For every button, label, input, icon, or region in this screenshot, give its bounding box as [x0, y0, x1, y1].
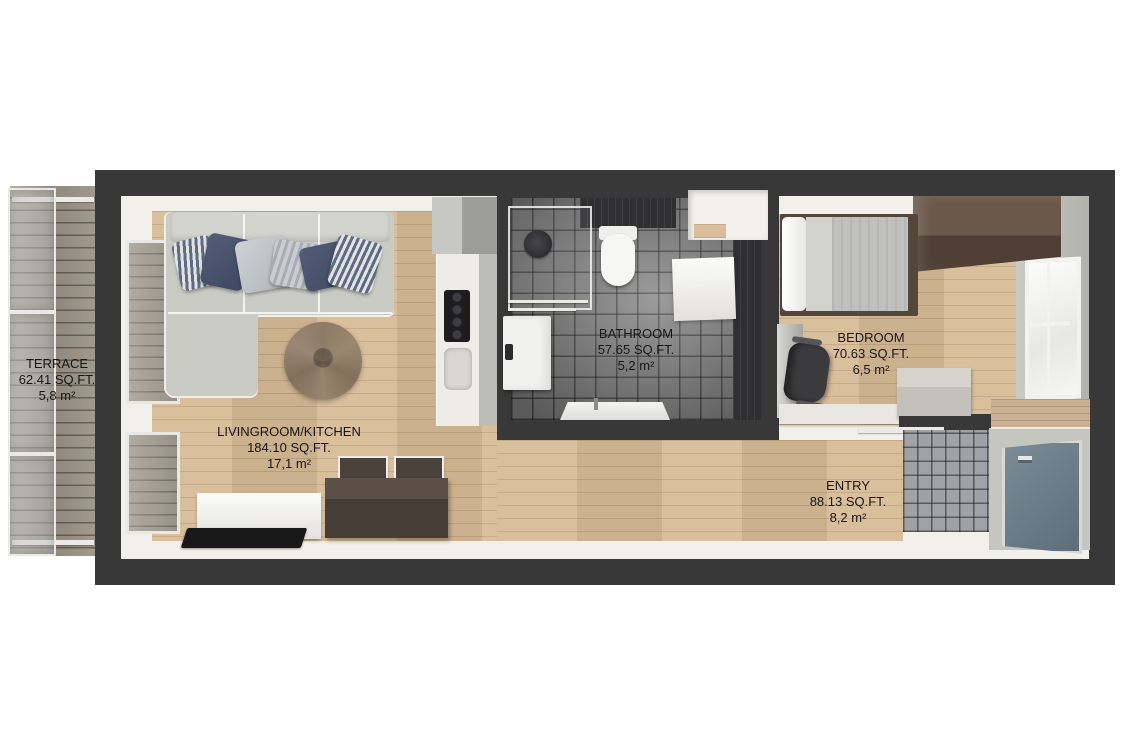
room-area-sqft: 88.13 SQ.FT.: [810, 494, 887, 510]
sofa-seam: [168, 312, 392, 314]
entry-overhead-panel: [991, 399, 1090, 429]
terrace-glass-railing-panel: [8, 188, 56, 312]
room-label-terrace: TERRACE 62.41 SQ.FT. 5,8 m²: [19, 356, 96, 404]
room-label-bathroom: BATHROOM 57.65 SQ.FT. 5,2 m²: [598, 326, 675, 374]
bathtub-faucet: [594, 398, 598, 410]
room-label-livingroom: LIVINGROOM/KITCHEN 184.10 SQ.FT. 17,1 m²: [217, 424, 361, 472]
room-name: LIVINGROOM/KITCHEN: [217, 424, 361, 440]
bed-mattress: [832, 217, 908, 311]
sofa-chaise: [166, 300, 258, 396]
shower-towel-rail: [508, 308, 576, 311]
bathtub: [560, 402, 670, 420]
tv: [181, 528, 307, 548]
room-label-bedroom: BEDROOM 70.63 SQ.FT. 6,5 m²: [833, 330, 910, 378]
room-area-sqft: 62.41 SQ.FT.: [19, 372, 96, 388]
dining-table: [325, 478, 448, 538]
floor-plan: TERRACE 62.41 SQ.FT. 5,8 m² LIVINGROOM/K…: [0, 0, 1127, 756]
toilet-bowl: [601, 234, 635, 286]
bathroom-slat-wall-right: [733, 232, 761, 420]
room-area-m2: 6,5 m²: [833, 362, 910, 378]
terrace-window: [126, 432, 180, 534]
shower-towel-rail: [508, 300, 588, 303]
bathroom-slat-wall-top: [580, 198, 676, 228]
room-area-sqft: 70.63 SQ.FT.: [833, 346, 910, 362]
terrace-glass-railing-panel: [8, 454, 56, 556]
window-mullion: [1047, 263, 1050, 387]
round-rug: [284, 322, 362, 400]
washbasin-faucet: [505, 344, 513, 360]
room-name: TERRACE: [19, 356, 96, 372]
entry-tile-floor: [903, 430, 989, 532]
kitchen-tall-unit: [432, 197, 497, 254]
room-area-sqft: 184.10 SQ.FT.: [217, 440, 361, 456]
bedroom-partition: [779, 404, 901, 424]
room-name: ENTRY: [810, 478, 887, 494]
kitchen-sink: [444, 348, 472, 390]
shower-enclosure: [508, 206, 592, 310]
storage-niche-floor: [694, 224, 726, 238]
entry-door-handle: [1018, 456, 1032, 460]
washing-machine: [672, 257, 736, 321]
room-area-m2: 5,8 m²: [19, 388, 96, 404]
room-area-m2: 17,1 m²: [217, 456, 361, 472]
bedroom-window: [1025, 257, 1081, 402]
entry-door: [1002, 440, 1082, 554]
room-area-m2: 8,2 m²: [810, 510, 887, 526]
room-area-sqft: 57.65 SQ.FT.: [598, 342, 675, 358]
cooktop: [444, 290, 470, 342]
room-area-m2: 5,2 m²: [598, 358, 675, 374]
room-label-entry: ENTRY 88.13 SQ.FT. 8,2 m²: [810, 478, 887, 526]
room-name: BATHROOM: [598, 326, 675, 342]
room-name: BEDROOM: [833, 330, 910, 346]
bed-blanket: [806, 217, 832, 311]
shower-head: [524, 230, 552, 258]
bed-pillow: [782, 217, 806, 311]
